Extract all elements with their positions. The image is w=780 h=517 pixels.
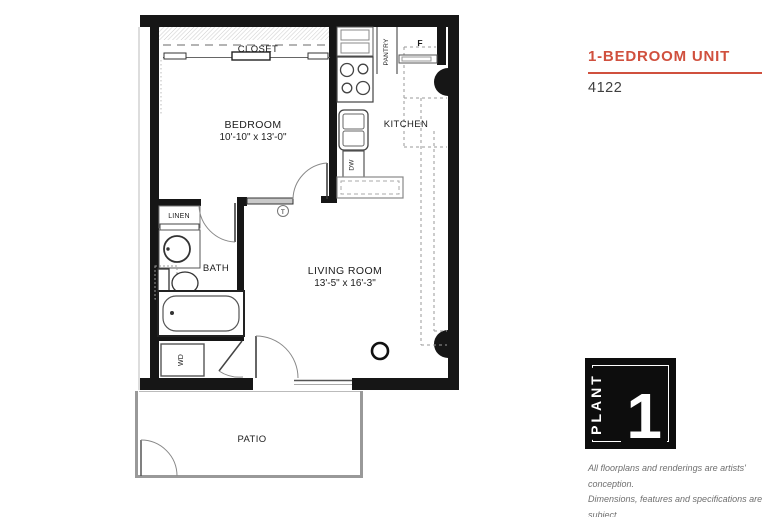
- column-top: [434, 68, 448, 96]
- peninsula-counter: [337, 177, 403, 198]
- kitchen: KITCHEN DW: [337, 27, 437, 198]
- bath-label: BATH: [203, 263, 229, 274]
- svg-text:DW: DW: [349, 159, 356, 171]
- pantry: PANTRY: [376, 27, 398, 74]
- unit-title: 1-BEDROOM UNIT: [588, 48, 762, 74]
- linen-label: LINEN: [168, 213, 190, 220]
- kitchen-sink: [339, 110, 368, 150]
- disclaimer-line: Dimensions, features and specifications …: [588, 492, 780, 517]
- kitchen-label: KITCHEN: [384, 119, 429, 130]
- bedroom-closet: CLOSET: [161, 44, 330, 115]
- pantry-label: PANTRY: [383, 38, 390, 65]
- upper-cabinet: [337, 27, 373, 56]
- linen-shelf: [160, 224, 199, 230]
- hall-partition-wall: [247, 198, 293, 204]
- svg-text:F: F: [417, 38, 422, 48]
- patio: PATIO: [135, 391, 363, 478]
- logo-plant-text: PLANT: [589, 368, 603, 440]
- dishwasher: DW: [343, 151, 364, 179]
- closet-door-panel: [232, 52, 270, 60]
- living-room-dimensions: 13'-5" x 16'-3": [314, 278, 376, 289]
- patio-entry-door: [256, 336, 352, 385]
- patio-label: PATIO: [237, 434, 266, 445]
- wd-door: [219, 341, 243, 377]
- patio-gate: [141, 440, 177, 476]
- washer-dryer-label: WD: [178, 354, 185, 366]
- closet-hatch: [159, 27, 330, 40]
- bathtub: [158, 291, 244, 336]
- unit-number: 4122: [588, 80, 622, 96]
- bedroom-dimensions: 10'-10" x 13'-0": [219, 132, 287, 143]
- closet-door-panel: [164, 53, 186, 59]
- washer-dryer-closet: WD: [161, 341, 243, 377]
- thermostat-marker: T: [278, 206, 289, 217]
- column-bottom: [434, 330, 448, 358]
- bedroom-label: BEDROOM: [224, 119, 281, 131]
- bath-door: [199, 203, 235, 242]
- disclaimer-text: All floorplans and renderings are artist…: [588, 461, 780, 517]
- plant-1-logo: PLANT 1: [585, 358, 676, 449]
- closet-door-panel: [308, 53, 328, 59]
- refrigerator: F: [399, 38, 437, 63]
- logo-numeral: 1: [621, 387, 667, 446]
- tub-drain: [170, 311, 174, 315]
- svg-text:T: T: [281, 209, 285, 216]
- floorplan-page: CLOSET BEDROOM 10'-10" x 13'-0" T LINEN: [0, 0, 780, 517]
- bedroom-door: [293, 163, 327, 199]
- floor-outlet: [372, 343, 388, 359]
- bathroom: LINEN BATH: [155, 203, 244, 336]
- floorplan-drawing: CLOSET BEDROOM 10'-10" x 13'-0" T LINEN: [0, 0, 520, 517]
- disclaimer-line: All floorplans and renderings are artist…: [588, 461, 780, 492]
- living-room-label: LIVING ROOM: [308, 265, 382, 277]
- range: [337, 57, 373, 102]
